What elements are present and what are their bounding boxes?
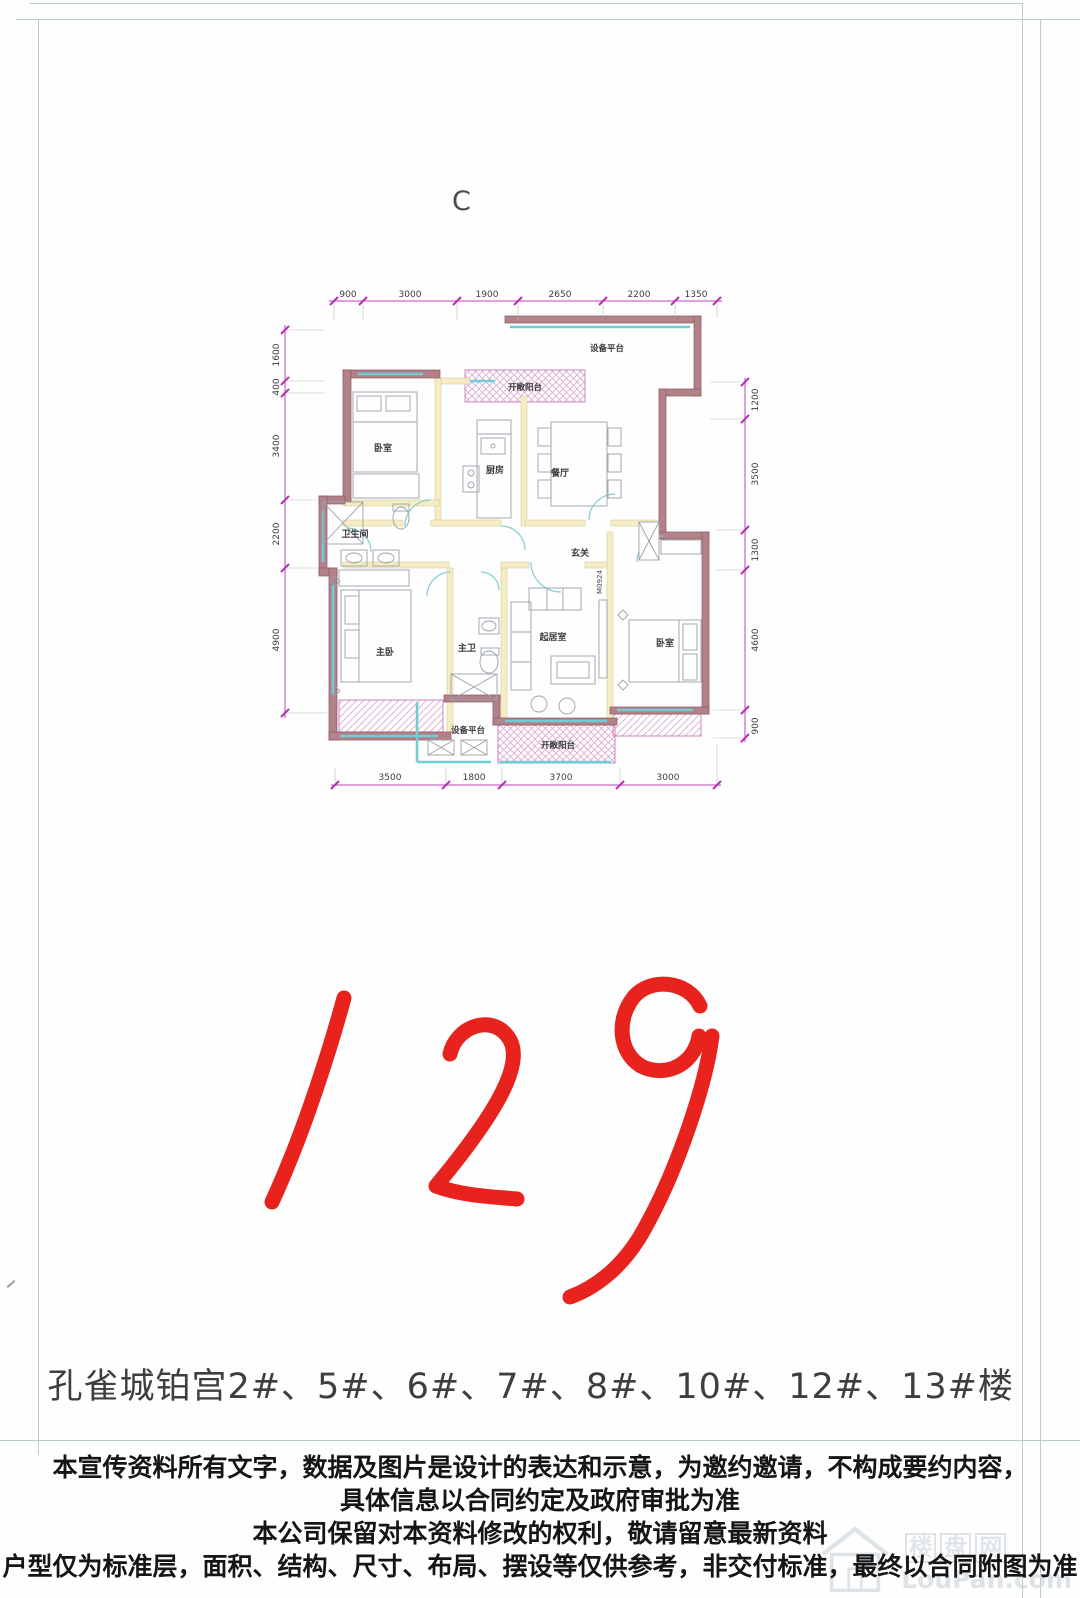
building-numbers-line: 孔雀城铂宫2#、5#、6#、7#、8#、10#、12#、13#楼	[0, 1358, 1014, 1409]
flyer-page: C	[0, 0, 1080, 1598]
digit-2-stroke	[436, 1025, 517, 1199]
digit-1-stroke	[272, 998, 344, 1202]
digit-9-loop	[622, 984, 700, 1070]
disclaimer-line: 本宣传资料所有文字，数据及图片是设计的表达和示意，为邀约邀请，不构成要约内容，	[0, 1452, 1080, 1485]
disclaimer-line: 户型仅为标准层，面积、结构、尺寸、布局、摆设等仅供参考，非交付标准，最终以合同附…	[0, 1551, 1080, 1584]
disclaimer-line: 具体信息以合同约定及政府审批为准	[0, 1485, 1080, 1518]
digit-9-tail	[570, 1036, 712, 1297]
disclaimer-line: 本公司保留对本资料修改的权利，敬请留意最新资料	[0, 1518, 1080, 1551]
disclaimer-block: 本宣传资料所有文字，数据及图片是设计的表达和示意，为邀约邀请，不构成要约内容， …	[0, 1452, 1080, 1584]
